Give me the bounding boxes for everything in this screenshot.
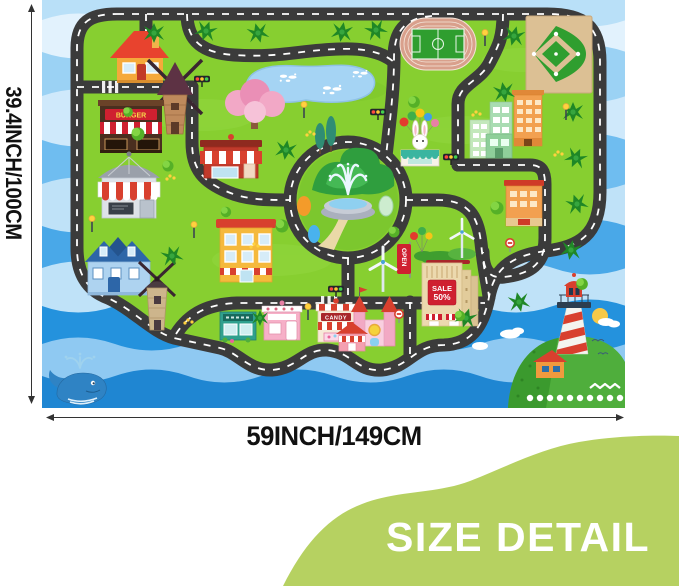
- soccer-field: [400, 18, 476, 70]
- balloon-icon: [410, 232, 418, 240]
- open-banner-text: OPEN: [400, 248, 407, 267]
- balloon-icon: [408, 112, 417, 121]
- height-label: 39.4INCH/100CM: [0, 86, 26, 233]
- candy-sign-text: CANDY: [325, 316, 347, 322]
- playmat-photo: BURGER: [42, 0, 625, 408]
- height-dimension-line: [28, 4, 35, 404]
- baseball-field: [526, 16, 592, 93]
- size-detail-product-image: BURGER: [0, 0, 679, 586]
- balloon-icon: [425, 232, 432, 239]
- arrow-up-icon: [28, 4, 35, 12]
- balloon-icon: [400, 118, 409, 127]
- balloon-icon: [418, 227, 426, 235]
- balloon-icon: [424, 113, 432, 121]
- arrow-down-icon: [28, 396, 35, 404]
- burger-shop: BURGER: [98, 100, 164, 153]
- width-label: 59INCH/149CM: [182, 421, 486, 452]
- orange-building: [504, 180, 544, 226]
- cloud-icon: [472, 342, 488, 350]
- flower-shop: [220, 312, 256, 343]
- orange-tower: [512, 90, 544, 146]
- pale-tree-icon: [379, 196, 393, 216]
- orange-tree-icon: [297, 196, 311, 216]
- balloon-icon: [416, 109, 425, 118]
- width-dimension-line: [46, 414, 624, 421]
- arrow-left-icon: [46, 414, 54, 421]
- balloon-icon: [431, 119, 439, 127]
- red-awning-shop: [200, 134, 262, 178]
- size-detail-badge: SIZE DETAIL: [358, 514, 678, 561]
- sale-sign-line2: 50%: [433, 292, 450, 302]
- yellow-building: [216, 219, 276, 282]
- blue-tree-icon: [308, 225, 320, 243]
- arrow-right-icon: [616, 414, 624, 421]
- size-detail-swoosh: [283, 436, 679, 586]
- pink-shop: [262, 301, 302, 341]
